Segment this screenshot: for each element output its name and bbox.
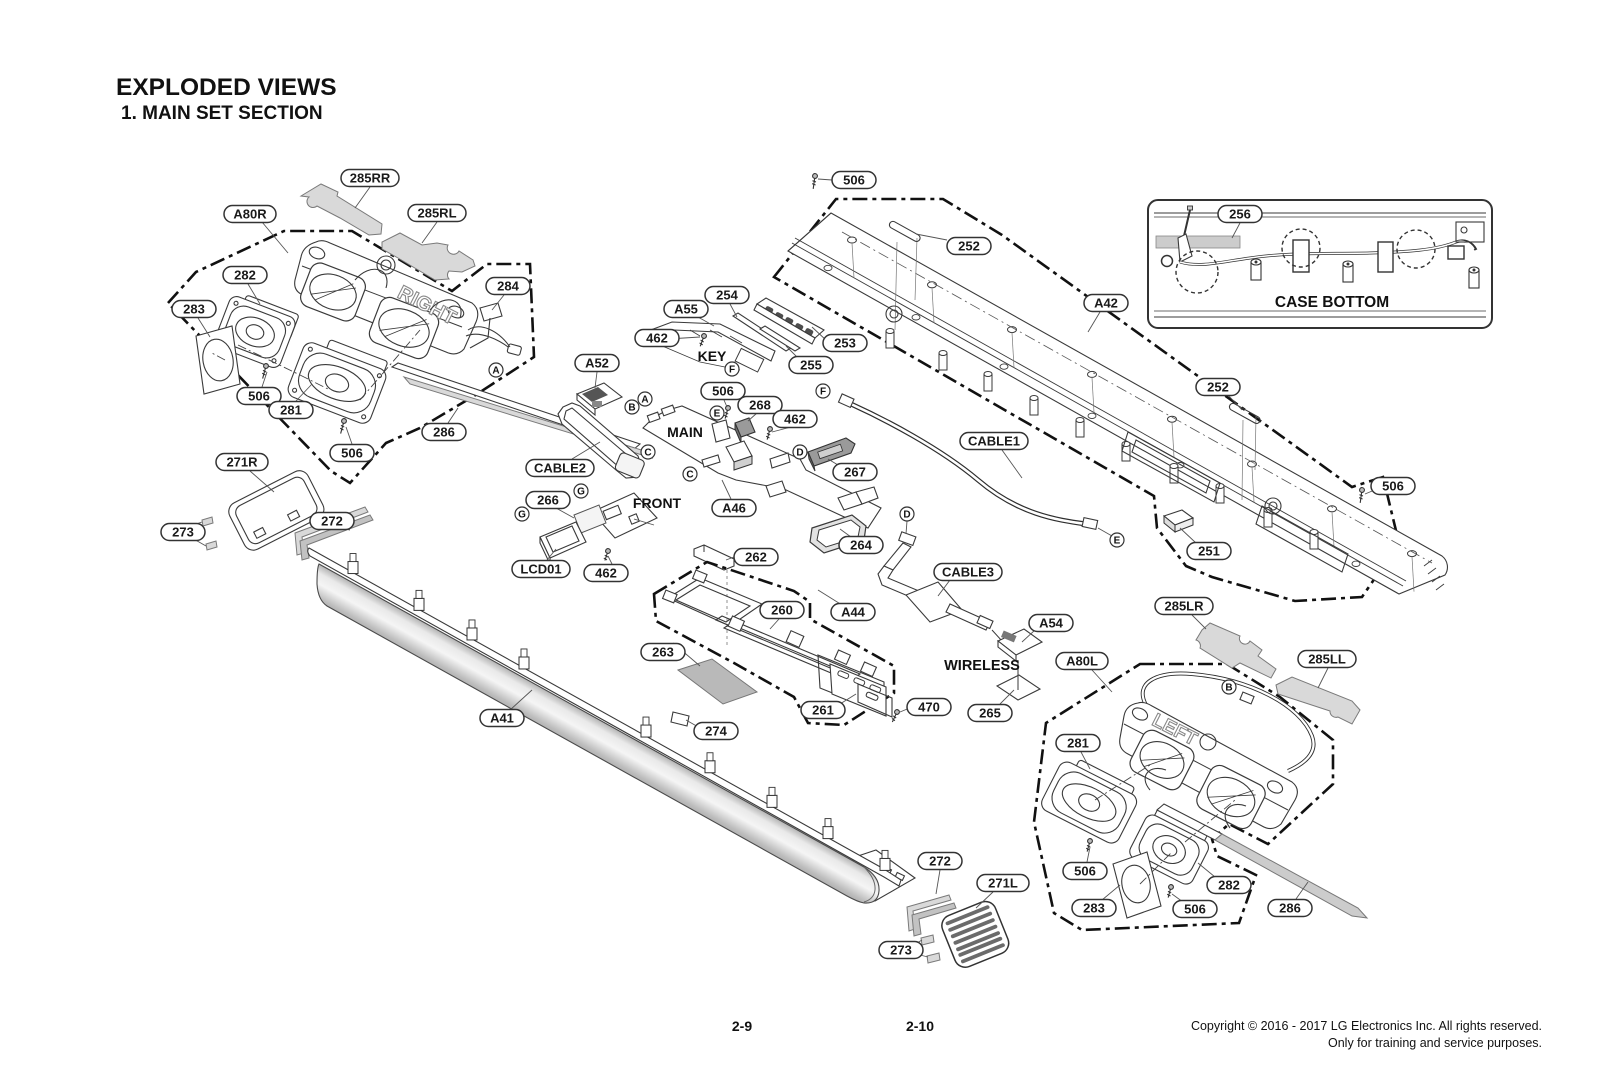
svg-text:264: 264 bbox=[850, 538, 872, 553]
svg-text:C: C bbox=[686, 470, 693, 481]
svg-text:506: 506 bbox=[1382, 479, 1404, 494]
svg-text:G: G bbox=[518, 510, 526, 521]
svg-text:CASE BOTTOM: CASE BOTTOM bbox=[1275, 294, 1389, 311]
svg-text:286: 286 bbox=[1279, 901, 1301, 916]
svg-text:Only for training and service: Only for training and service purposes. bbox=[1328, 1036, 1542, 1050]
svg-text:285LR: 285LR bbox=[1164, 599, 1204, 614]
svg-text:282: 282 bbox=[1218, 878, 1240, 893]
svg-text:470: 470 bbox=[918, 700, 940, 715]
svg-text:E: E bbox=[1114, 536, 1121, 547]
svg-text:CABLE1: CABLE1 bbox=[968, 434, 1020, 449]
svg-text:506: 506 bbox=[1074, 864, 1096, 879]
svg-text:261: 261 bbox=[812, 703, 834, 718]
svg-text:267: 267 bbox=[844, 465, 866, 480]
svg-text:255: 255 bbox=[800, 358, 822, 373]
svg-text:MAIN: MAIN bbox=[667, 424, 703, 440]
svg-text:281: 281 bbox=[1067, 736, 1089, 751]
svg-text:A: A bbox=[492, 366, 499, 377]
svg-text:A: A bbox=[641, 395, 648, 406]
svg-text:462: 462 bbox=[646, 331, 668, 346]
svg-text:506: 506 bbox=[1184, 902, 1206, 917]
svg-text:EXPLODED VIEWS: EXPLODED VIEWS bbox=[116, 74, 337, 101]
svg-text:2-9: 2-9 bbox=[732, 1018, 752, 1034]
svg-text:F: F bbox=[729, 365, 735, 376]
svg-text:D: D bbox=[903, 510, 910, 521]
svg-text:271R: 271R bbox=[226, 455, 258, 470]
svg-text:274: 274 bbox=[705, 724, 727, 739]
svg-text:251: 251 bbox=[1198, 544, 1220, 559]
svg-text:B: B bbox=[1225, 683, 1232, 694]
svg-text:271L: 271L bbox=[988, 876, 1018, 891]
svg-text:253: 253 bbox=[834, 336, 856, 351]
svg-text:285RR: 285RR bbox=[350, 171, 391, 186]
svg-text:252: 252 bbox=[958, 239, 980, 254]
svg-text:285LL: 285LL bbox=[1308, 652, 1346, 667]
svg-text:A41: A41 bbox=[490, 711, 514, 726]
svg-text:268: 268 bbox=[749, 398, 771, 413]
svg-text:A80R: A80R bbox=[233, 207, 267, 222]
svg-text:506: 506 bbox=[248, 389, 270, 404]
svg-text:CABLE2: CABLE2 bbox=[534, 461, 586, 476]
svg-text:G: G bbox=[577, 487, 585, 498]
svg-text:1. MAIN SET SECTION: 1. MAIN SET SECTION bbox=[121, 103, 323, 124]
svg-text:272: 272 bbox=[929, 854, 951, 869]
svg-text:282: 282 bbox=[234, 268, 256, 283]
svg-text:281: 281 bbox=[280, 403, 302, 418]
svg-text:506: 506 bbox=[341, 446, 363, 461]
svg-text:265: 265 bbox=[979, 706, 1001, 721]
svg-text:252: 252 bbox=[1207, 380, 1229, 395]
svg-text:262: 262 bbox=[745, 550, 767, 565]
svg-text:263: 263 bbox=[652, 645, 674, 660]
svg-text:LCD01: LCD01 bbox=[520, 562, 561, 577]
svg-text:B: B bbox=[628, 403, 635, 414]
svg-text:A46: A46 bbox=[722, 501, 746, 516]
svg-text:506: 506 bbox=[843, 173, 865, 188]
svg-text:286: 286 bbox=[433, 425, 455, 440]
svg-text:WIRELESS: WIRELESS bbox=[944, 658, 1020, 674]
svg-text:KEY: KEY bbox=[698, 348, 727, 364]
svg-text:260: 260 bbox=[771, 603, 793, 618]
svg-text:A80L: A80L bbox=[1066, 654, 1098, 669]
svg-text:283: 283 bbox=[183, 302, 205, 317]
svg-text:462: 462 bbox=[784, 412, 806, 427]
svg-text:273: 273 bbox=[172, 525, 194, 540]
svg-text:A55: A55 bbox=[674, 302, 698, 317]
svg-text:A52: A52 bbox=[585, 356, 609, 371]
svg-text:CABLE3: CABLE3 bbox=[942, 565, 994, 580]
svg-text:A44: A44 bbox=[841, 605, 866, 620]
svg-text:283: 283 bbox=[1083, 901, 1105, 916]
svg-text:FRONT: FRONT bbox=[633, 495, 682, 511]
svg-text:2-10: 2-10 bbox=[906, 1018, 934, 1034]
svg-text:272: 272 bbox=[321, 514, 343, 529]
svg-text:256: 256 bbox=[1229, 207, 1251, 222]
svg-text:285RL: 285RL bbox=[417, 206, 456, 221]
svg-text:273: 273 bbox=[890, 943, 912, 958]
svg-text:A42: A42 bbox=[1094, 296, 1118, 311]
svg-text:E: E bbox=[714, 409, 721, 420]
svg-text:A54: A54 bbox=[1039, 616, 1064, 631]
svg-text:266: 266 bbox=[537, 493, 559, 508]
svg-text:254: 254 bbox=[716, 288, 738, 303]
svg-text:C: C bbox=[644, 448, 651, 459]
svg-text:462: 462 bbox=[595, 566, 617, 581]
svg-text:D: D bbox=[796, 448, 803, 459]
svg-text:F: F bbox=[820, 387, 826, 398]
svg-text:Copyright © 2016 - 2017 LG Ele: Copyright © 2016 - 2017 LG Electronics I… bbox=[1191, 1019, 1542, 1033]
svg-text:284: 284 bbox=[497, 279, 519, 294]
svg-text:506: 506 bbox=[712, 384, 734, 399]
